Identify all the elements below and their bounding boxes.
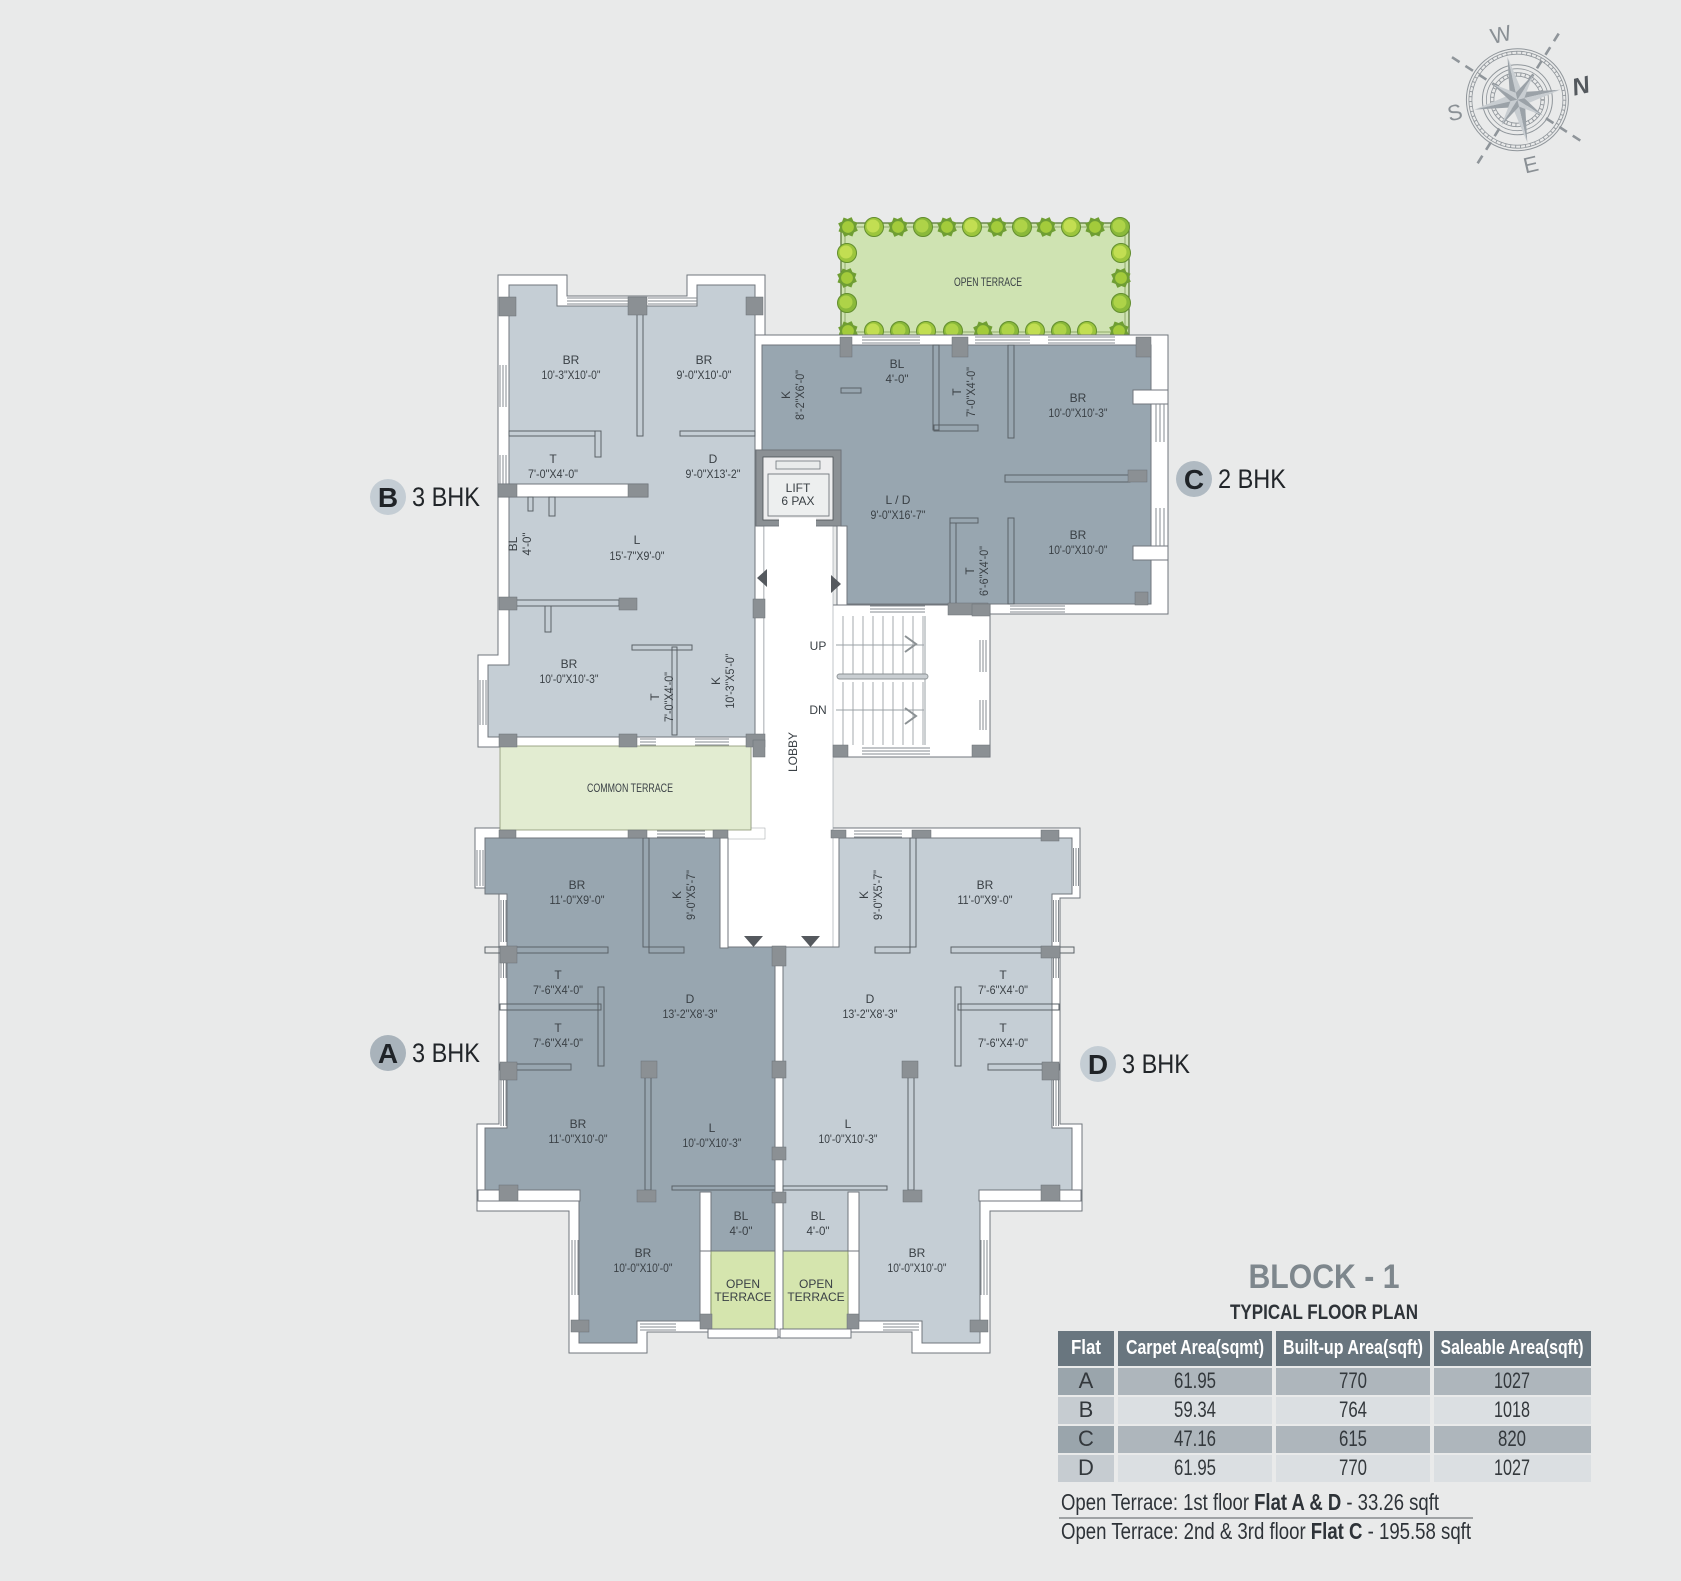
- svg-text:9'-0"X5'-7": 9'-0"X5'-7": [686, 870, 698, 920]
- svg-text:T: T: [963, 567, 977, 575]
- svg-text:7'-0"X4'-0": 7'-0"X4'-0": [664, 672, 676, 722]
- svg-text:764: 764: [1339, 1397, 1367, 1422]
- svg-text:BR: BR: [561, 657, 578, 671]
- svg-text:615: 615: [1339, 1426, 1367, 1451]
- svg-text:UP: UP: [810, 639, 827, 653]
- svg-text:7'-0"X4'-0": 7'-0"X4'-0": [528, 469, 578, 481]
- svg-text:C: C: [1184, 464, 1204, 495]
- svg-text:BL: BL: [890, 357, 905, 371]
- svg-text:61.95: 61.95: [1174, 1368, 1216, 1393]
- svg-text:Saleable Area(sqft): Saleable Area(sqft): [1441, 1337, 1584, 1359]
- svg-text:Flat: Flat: [1071, 1337, 1101, 1359]
- svg-text:D: D: [709, 452, 718, 466]
- svg-text:T: T: [999, 968, 1007, 982]
- svg-text:3 BHK: 3 BHK: [412, 482, 480, 512]
- svg-text:770: 770: [1339, 1368, 1367, 1393]
- svg-text:9'-0"X16'-7": 9'-0"X16'-7": [871, 510, 926, 522]
- svg-text:DN: DN: [809, 703, 826, 717]
- svg-text:OPEN: OPEN: [799, 1277, 833, 1291]
- svg-text:7'-6"X4'-0": 7'-6"X4'-0": [978, 1038, 1028, 1050]
- svg-text:K: K: [709, 677, 723, 685]
- svg-text:BLOCK - 1: BLOCK - 1: [1249, 1258, 1400, 1296]
- svg-text:7'-0"X4'-0": 7'-0"X4'-0": [966, 367, 978, 417]
- svg-text:10'-3"X10'-0": 10'-3"X10'-0": [542, 370, 601, 382]
- svg-text:Carpet Area(sqmt): Carpet Area(sqmt): [1126, 1337, 1264, 1359]
- svg-text:T: T: [554, 1021, 562, 1035]
- svg-text:LIFT: LIFT: [786, 481, 811, 495]
- svg-text:OPEN TERRACE: OPEN TERRACE: [954, 275, 1022, 289]
- svg-text:A: A: [1079, 1368, 1094, 1393]
- svg-text:7'-6"X4'-0": 7'-6"X4'-0": [533, 985, 583, 997]
- svg-text:LOBBY: LOBBY: [786, 732, 800, 772]
- svg-text:13'-2"X8'-3": 13'-2"X8'-3": [843, 1009, 898, 1021]
- svg-text:8'-2"X6'-0": 8'-2"X6'-0": [795, 370, 807, 420]
- svg-text:1027: 1027: [1494, 1455, 1530, 1480]
- svg-text:1027: 1027: [1494, 1368, 1530, 1393]
- svg-text:K: K: [779, 391, 793, 399]
- svg-text:BL: BL: [811, 1209, 826, 1223]
- svg-text:3 BHK: 3 BHK: [1122, 1049, 1190, 1079]
- svg-text:4'-0": 4'-0": [886, 374, 909, 386]
- svg-text:11'-0"X10'-0": 11'-0"X10'-0": [549, 1134, 608, 1146]
- svg-text:A: A: [378, 1038, 398, 1069]
- svg-text:BR: BR: [1070, 391, 1087, 405]
- svg-text:TERRACE: TERRACE: [787, 1290, 844, 1304]
- svg-text:BR: BR: [696, 353, 713, 367]
- svg-text:4'-0": 4'-0": [730, 1226, 753, 1238]
- svg-text:4'-0": 4'-0": [807, 1226, 830, 1238]
- svg-text:BR: BR: [635, 1246, 652, 1260]
- svg-text:L: L: [709, 1121, 716, 1135]
- svg-text:7'-6"X4'-0": 7'-6"X4'-0": [978, 985, 1028, 997]
- svg-text:61.95: 61.95: [1174, 1455, 1216, 1480]
- svg-text:11'-0"X9'-0": 11'-0"X9'-0": [550, 895, 605, 907]
- svg-text:B: B: [1079, 1397, 1094, 1422]
- svg-text:Open Terrace: 1st floor Flat A: Open Terrace: 1st floor Flat A & D - 33.…: [1061, 1489, 1439, 1515]
- svg-text:TERRACE: TERRACE: [714, 1290, 771, 1304]
- svg-text:4'-0": 4'-0": [522, 533, 534, 556]
- svg-text:T: T: [549, 452, 557, 466]
- svg-text:BR: BR: [909, 1246, 926, 1260]
- svg-text:D: D: [686, 992, 695, 1006]
- svg-text:1018: 1018: [1494, 1397, 1530, 1422]
- svg-text:B: B: [378, 482, 398, 513]
- svg-text:10'-0"X10'-3": 10'-0"X10'-3": [540, 674, 599, 686]
- svg-text:10'-0"X10'-0": 10'-0"X10'-0": [888, 1263, 947, 1275]
- svg-text:2 BHK: 2 BHK: [1218, 464, 1286, 494]
- svg-text:T: T: [950, 388, 964, 396]
- svg-text:COMMON TERRACE: COMMON TERRACE: [587, 781, 673, 795]
- svg-text:10'-0"X10'-3": 10'-0"X10'-3": [819, 1134, 878, 1146]
- svg-text:BR: BR: [563, 353, 580, 367]
- svg-text:6'-6"X4'-0": 6'-6"X4'-0": [979, 546, 991, 596]
- svg-text:BR: BR: [570, 1117, 587, 1131]
- svg-text:6 PAX: 6 PAX: [781, 494, 814, 508]
- svg-text:9'-0"X13'-2": 9'-0"X13'-2": [686, 469, 741, 481]
- svg-text:10'-3"X5'-0": 10'-3"X5'-0": [725, 654, 737, 709]
- svg-text:TYPICAL FLOOR PLAN: TYPICAL FLOOR PLAN: [1230, 1301, 1418, 1324]
- svg-text:15'-7"X9'-0": 15'-7"X9'-0": [610, 551, 665, 563]
- svg-text:BR: BR: [569, 878, 586, 892]
- svg-text:L: L: [845, 1117, 852, 1131]
- svg-text:10'-0"X10'-3": 10'-0"X10'-3": [683, 1138, 742, 1150]
- svg-text:C: C: [1078, 1426, 1094, 1451]
- svg-text:9'-0"X10'-0": 9'-0"X10'-0": [677, 370, 732, 382]
- svg-text:10'-0"X10'-0": 10'-0"X10'-0": [614, 1263, 673, 1275]
- svg-text:T: T: [554, 968, 562, 982]
- svg-text:10'-0"X10'-3": 10'-0"X10'-3": [1049, 408, 1108, 420]
- svg-text:T: T: [648, 693, 662, 701]
- svg-text:9'-0"X5'-7": 9'-0"X5'-7": [873, 870, 885, 920]
- svg-text:BR: BR: [1070, 528, 1087, 542]
- svg-text:BL: BL: [734, 1209, 749, 1223]
- svg-text:3 BHK: 3 BHK: [412, 1038, 480, 1068]
- svg-text:7'-6"X4'-0": 7'-6"X4'-0": [533, 1038, 583, 1050]
- svg-text:10'-0"X10'-0": 10'-0"X10'-0": [1049, 545, 1108, 557]
- svg-text:13'-2"X8'-3": 13'-2"X8'-3": [663, 1009, 718, 1021]
- svg-text:OPEN: OPEN: [726, 1277, 760, 1291]
- svg-text:820: 820: [1498, 1426, 1526, 1451]
- svg-text:T: T: [999, 1021, 1007, 1035]
- svg-text:K: K: [670, 891, 684, 899]
- svg-text:L: L: [634, 533, 641, 547]
- svg-text:Built-up Area(sqft): Built-up Area(sqft): [1283, 1337, 1423, 1359]
- svg-text:47.16: 47.16: [1174, 1426, 1216, 1451]
- svg-text:D: D: [1078, 1455, 1094, 1480]
- svg-text:D: D: [866, 992, 875, 1006]
- svg-text:770: 770: [1339, 1455, 1367, 1480]
- svg-text:L / D: L / D: [886, 493, 911, 507]
- svg-text:BR: BR: [977, 878, 994, 892]
- svg-text:BL: BL: [506, 536, 520, 551]
- svg-text:Open Terrace: 2nd & 3rd floor: Open Terrace: 2nd & 3rd floor Flat C - 1…: [1061, 1518, 1471, 1544]
- svg-text:D: D: [1088, 1049, 1108, 1080]
- svg-text:K: K: [857, 891, 871, 899]
- svg-text:59.34: 59.34: [1174, 1397, 1216, 1422]
- svg-text:11'-0"X9'-0": 11'-0"X9'-0": [958, 895, 1013, 907]
